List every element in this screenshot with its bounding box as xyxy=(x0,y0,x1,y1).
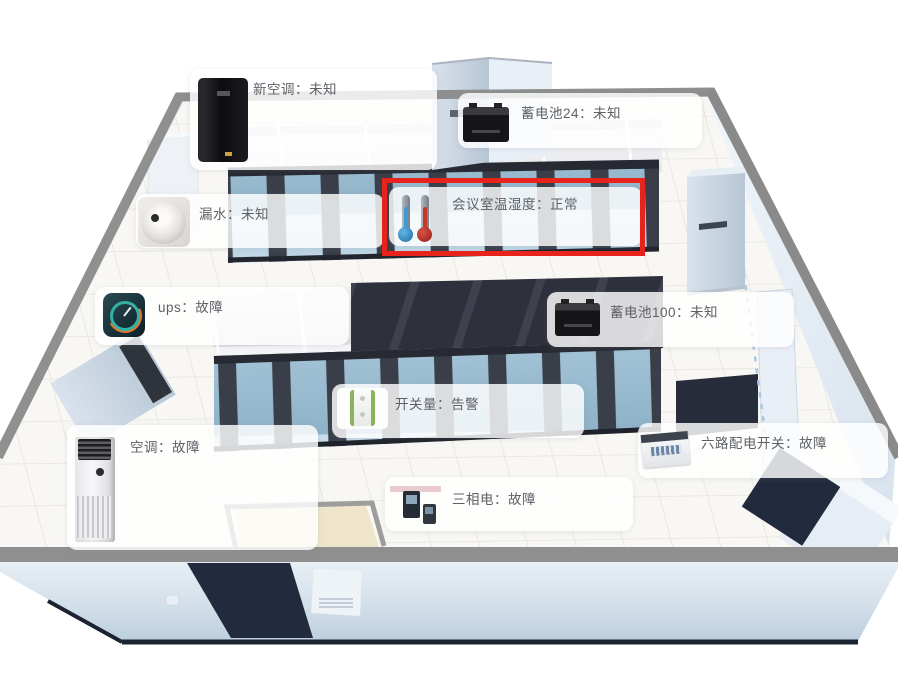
device-label-new-ac[interactable]: 新空调：未知 xyxy=(190,69,437,170)
front-wall xyxy=(0,547,898,642)
device-label-distribution-switch[interactable]: 六路配电开关：故障 xyxy=(638,423,888,478)
gauge-icon xyxy=(103,293,145,337)
device-label-text: ups：故障 xyxy=(158,296,223,316)
device-label-text: 三相电：故障 xyxy=(452,488,536,508)
distribution-box-icon xyxy=(640,430,692,470)
device-label-three-phase[interactable]: 三相电：故障 xyxy=(385,477,633,531)
device-label-text: 空调：故障 xyxy=(130,436,200,456)
right-ac-cabinet xyxy=(687,166,749,296)
leak-sensor-icon xyxy=(138,197,190,247)
device-label-battery100[interactable]: 蓄电池100：未知 xyxy=(547,292,794,347)
ups-cabinet-icon xyxy=(198,78,248,162)
device-label-text: 蓄电池100：未知 xyxy=(610,301,718,321)
machine-room-monitor: { "scene": { "description": "3D machine … xyxy=(0,0,898,674)
device-label-text: 六路配电开关：故障 xyxy=(701,432,827,452)
io-module-icon xyxy=(337,388,388,429)
device-label-leak[interactable]: 漏水：未知 xyxy=(136,194,384,248)
device-label-text: 蓄电池24：未知 xyxy=(521,102,621,122)
device-label-text: 会议室温湿度：正常 xyxy=(452,193,578,213)
battery-icon xyxy=(463,107,509,142)
device-label-conference-temp-humidity[interactable]: 会议室温湿度：正常 xyxy=(389,187,642,246)
thermometer-blue-icon xyxy=(398,195,414,242)
thermometer-red-icon xyxy=(417,195,433,242)
device-label-ups[interactable]: ups：故障 xyxy=(95,287,349,345)
wall-socket xyxy=(166,595,179,605)
device-label-battery24[interactable]: 蓄电池24：未知 xyxy=(458,93,702,148)
floor-ac-icon xyxy=(75,437,115,542)
device-label-ac[interactable]: 空调：故障 xyxy=(67,425,318,550)
battery-icon xyxy=(555,303,600,336)
device-label-text: 新空调：未知 xyxy=(253,78,337,98)
device-label-text: 开关量：告警 xyxy=(395,393,479,413)
device-label-switch-io[interactable]: 开关量：告警 xyxy=(332,384,584,438)
wall-vent-box xyxy=(311,569,362,616)
power-meter-icons xyxy=(390,483,443,525)
device-label-text: 漏水：未知 xyxy=(199,203,269,223)
